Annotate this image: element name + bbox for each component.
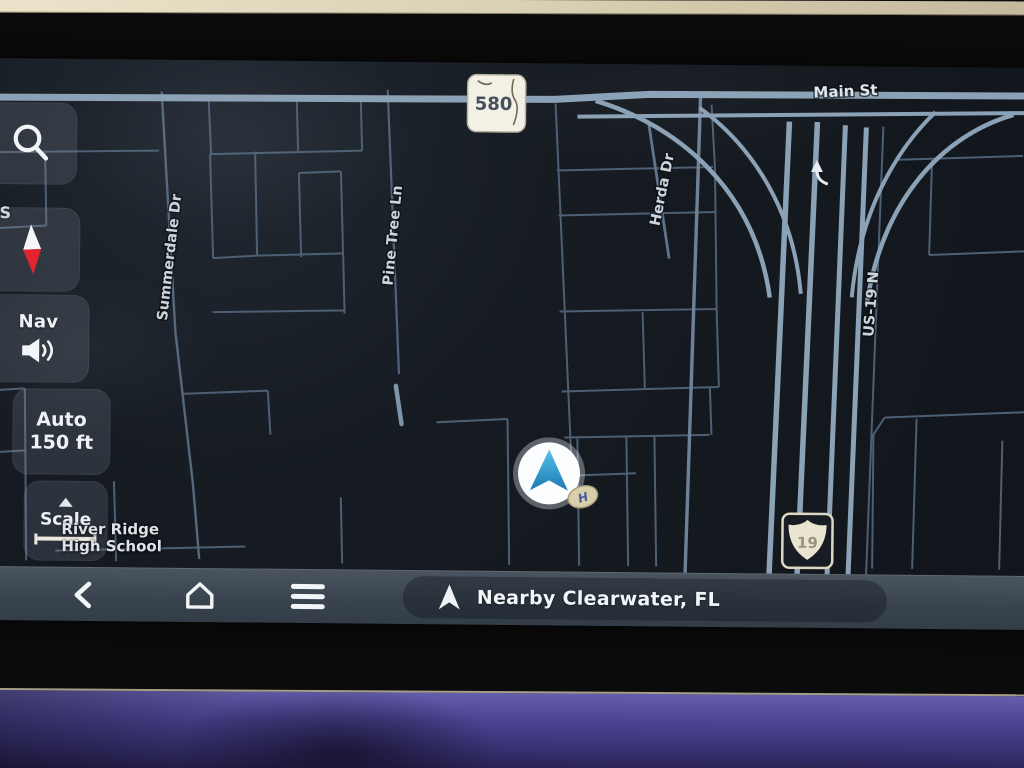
home-button[interactable] <box>177 569 224 622</box>
zoom-mode-label: Auto <box>36 408 87 431</box>
menu-button[interactable] <box>285 570 332 623</box>
street-label-summerdale: Summerdale Dr <box>155 192 185 321</box>
zoom-scale-label: 150 ft <box>29 431 93 455</box>
system-bar: Nearby Clearwater, FL <box>0 566 1024 630</box>
summerdale-road <box>157 92 203 559</box>
dashboard-trim <box>0 0 1024 15</box>
dashboard-shadow <box>0 690 1024 768</box>
back-button[interactable] <box>61 568 106 621</box>
navigation-arrow-icon <box>437 583 462 611</box>
scale-ruler-icon <box>34 533 96 545</box>
nav-volume-label: Nav <box>18 311 58 332</box>
menu-icon <box>291 584 325 609</box>
route-shield-580: 580 <box>467 75 526 133</box>
svg-text:19: 19 <box>797 534 818 552</box>
navigation-map[interactable]: Summerdale Dr Pine Tree Ln Herda Dr US-1… <box>0 58 1024 630</box>
pine-tree-stub <box>396 386 402 424</box>
street-label-main-st: Main St <box>813 81 878 102</box>
center-avenue <box>685 93 701 573</box>
scale-label: Scale <box>40 509 91 529</box>
auto-zoom-button[interactable]: Auto 150 ft <box>12 388 111 475</box>
street-label-herda: Herda Dr <box>648 151 679 227</box>
destination-pill[interactable]: Nearby Clearwater, FL <box>403 576 887 623</box>
nav-volume-button[interactable]: Nav <box>0 294 90 383</box>
compass-needle-icon <box>15 221 50 277</box>
search-icon <box>10 122 52 164</box>
home-icon <box>183 580 217 610</box>
street-label-pine-tree: Pine Tree Ln <box>381 185 407 287</box>
back-icon <box>70 579 96 609</box>
scale-button[interactable]: Scale <box>23 480 108 561</box>
infotainment-screen: Summerdale Dr Pine Tree Ln Herda Dr US-1… <box>0 58 1024 630</box>
chevron-up-icon <box>59 497 73 506</box>
svg-text:580: 580 <box>475 94 513 115</box>
dashboard-ambient <box>0 688 1024 768</box>
photo-of-car-display: Summerdale Dr Pine Tree Ln Herda Dr US-1… <box>0 0 1024 768</box>
route-shield-19: 19 <box>782 514 833 568</box>
search-button[interactable] <box>0 102 78 185</box>
destination-text: Nearby Clearwater, FL <box>477 587 720 611</box>
street-label-us19: US-19 N <box>861 271 882 338</box>
compass-button[interactable] <box>0 207 81 292</box>
volume-icon <box>18 335 58 365</box>
